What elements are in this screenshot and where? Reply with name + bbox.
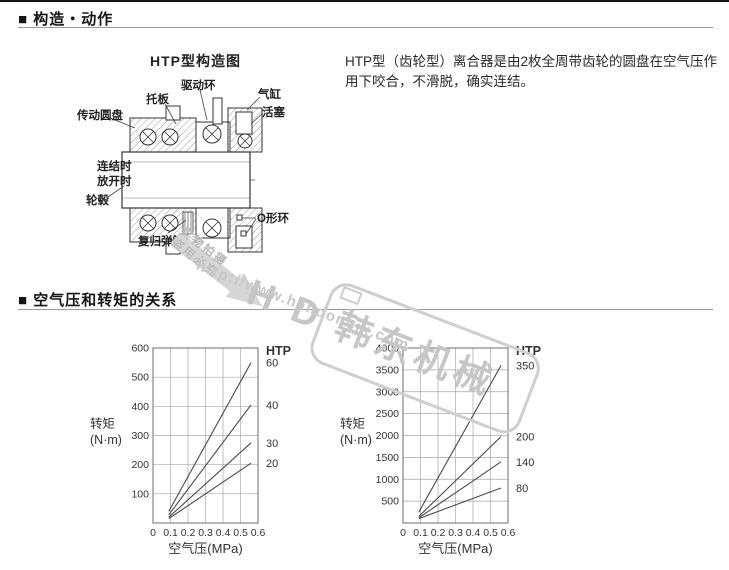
svg-text:30: 30 — [266, 438, 278, 450]
svg-text:3500: 3500 — [376, 364, 400, 376]
svg-text:1500: 1500 — [376, 452, 400, 464]
label-cylinder: 气缸 — [258, 86, 281, 102]
svg-text:60: 60 — [266, 358, 278, 370]
svg-text:0.1: 0.1 — [413, 527, 428, 539]
svg-text:2000: 2000 — [376, 430, 400, 442]
svg-text:空气压(MPa): 空气压(MPa) — [418, 541, 492, 556]
svg-text:100: 100 — [131, 488, 149, 500]
svg-text:0.4: 0.4 — [466, 527, 481, 539]
svg-text:(N·m): (N·m) — [90, 433, 122, 447]
label-drive-ring: 驱动环 — [181, 77, 216, 93]
section-marker-icon: ■ — [18, 292, 28, 309]
section-rule — [18, 27, 713, 28]
catalog-page: ■ 构造・动作 HTP型构造图 HTP型（齿轮型）离合器是由2枚全周带齿轮的圆盘… — [0, 0, 729, 570]
section-rule — [18, 309, 713, 310]
svg-text:0.6: 0.6 — [501, 527, 516, 539]
svg-text:(N·m): (N·m) — [340, 433, 372, 447]
svg-text:3000: 3000 — [376, 386, 400, 398]
svg-text:400: 400 — [131, 401, 149, 413]
description-text: HTP型（齿轮型）离合器是由2枚全周带齿轮的圆盘在空气压作用下咬合，不滑脱，确实… — [345, 52, 719, 92]
label-o-ring: O形环 — [257, 210, 289, 226]
label-return-spring: 复归弹簧 — [138, 233, 184, 249]
svg-text:HTP: HTP — [516, 344, 541, 358]
label-engaged-state: 连结时 — [97, 158, 132, 174]
svg-text:500: 500 — [381, 496, 399, 508]
svg-text:0: 0 — [150, 527, 156, 539]
svg-text:0: 0 — [400, 527, 406, 539]
svg-text:80: 80 — [516, 483, 528, 495]
watermark-small-box — [339, 286, 362, 305]
section-header-pressure-torque: ■ 空气压和转矩的关系 — [18, 289, 177, 310]
svg-text:140: 140 — [516, 457, 534, 469]
svg-text:500: 500 — [131, 372, 149, 384]
page-top-border — [0, 0, 729, 2]
svg-text:0.1: 0.1 — [163, 527, 178, 539]
label-hub: 轮毂 — [86, 192, 109, 208]
svg-text:1000: 1000 — [376, 474, 400, 486]
section-title: 空气压和转矩的关系 — [33, 292, 177, 309]
torque-chart-htp-large: 500100015002000250030003500400000.10.20.… — [338, 340, 552, 561]
svg-text:200: 200 — [131, 459, 149, 471]
svg-text:0.2: 0.2 — [181, 527, 196, 539]
svg-text:0.2: 0.2 — [431, 527, 446, 539]
svg-text:200: 200 — [516, 432, 534, 444]
svg-text:0.6: 0.6 — [251, 527, 266, 539]
svg-text:20: 20 — [266, 458, 278, 470]
label-piston: 活塞 — [262, 104, 285, 120]
svg-text:300: 300 — [131, 430, 149, 442]
svg-text:0.3: 0.3 — [198, 527, 213, 539]
torque-chart-htp-small: 10020030040050060000.10.20.30.40.50.6604… — [88, 340, 302, 561]
svg-text:2500: 2500 — [376, 408, 400, 420]
section-title: 构造・动作 — [33, 11, 113, 28]
label-released-state: 放开时 — [97, 173, 132, 189]
section-marker-icon: ■ — [18, 11, 28, 28]
svg-text:600: 600 — [131, 343, 149, 355]
svg-text:350: 350 — [516, 361, 534, 373]
svg-text:HTP: HTP — [266, 344, 291, 358]
svg-text:0.5: 0.5 — [233, 527, 248, 539]
svg-text:40: 40 — [266, 400, 278, 412]
diagram-title: HTP型构造图 — [150, 51, 241, 71]
svg-text:4000: 4000 — [376, 343, 400, 355]
svg-text:转矩: 转矩 — [340, 416, 365, 431]
svg-text:0.4: 0.4 — [216, 527, 231, 539]
section-header-structure: ■ 构造・动作 — [18, 8, 113, 29]
label-drive-disc: 传动圆盘 — [77, 107, 123, 123]
label-support-plate: 托板 — [146, 91, 169, 107]
svg-text:转矩: 转矩 — [90, 416, 115, 431]
svg-text:空气压(MPa): 空气压(MPa) — [168, 541, 242, 556]
svg-text:0.3: 0.3 — [448, 527, 463, 539]
svg-text:0.5: 0.5 — [483, 527, 498, 539]
